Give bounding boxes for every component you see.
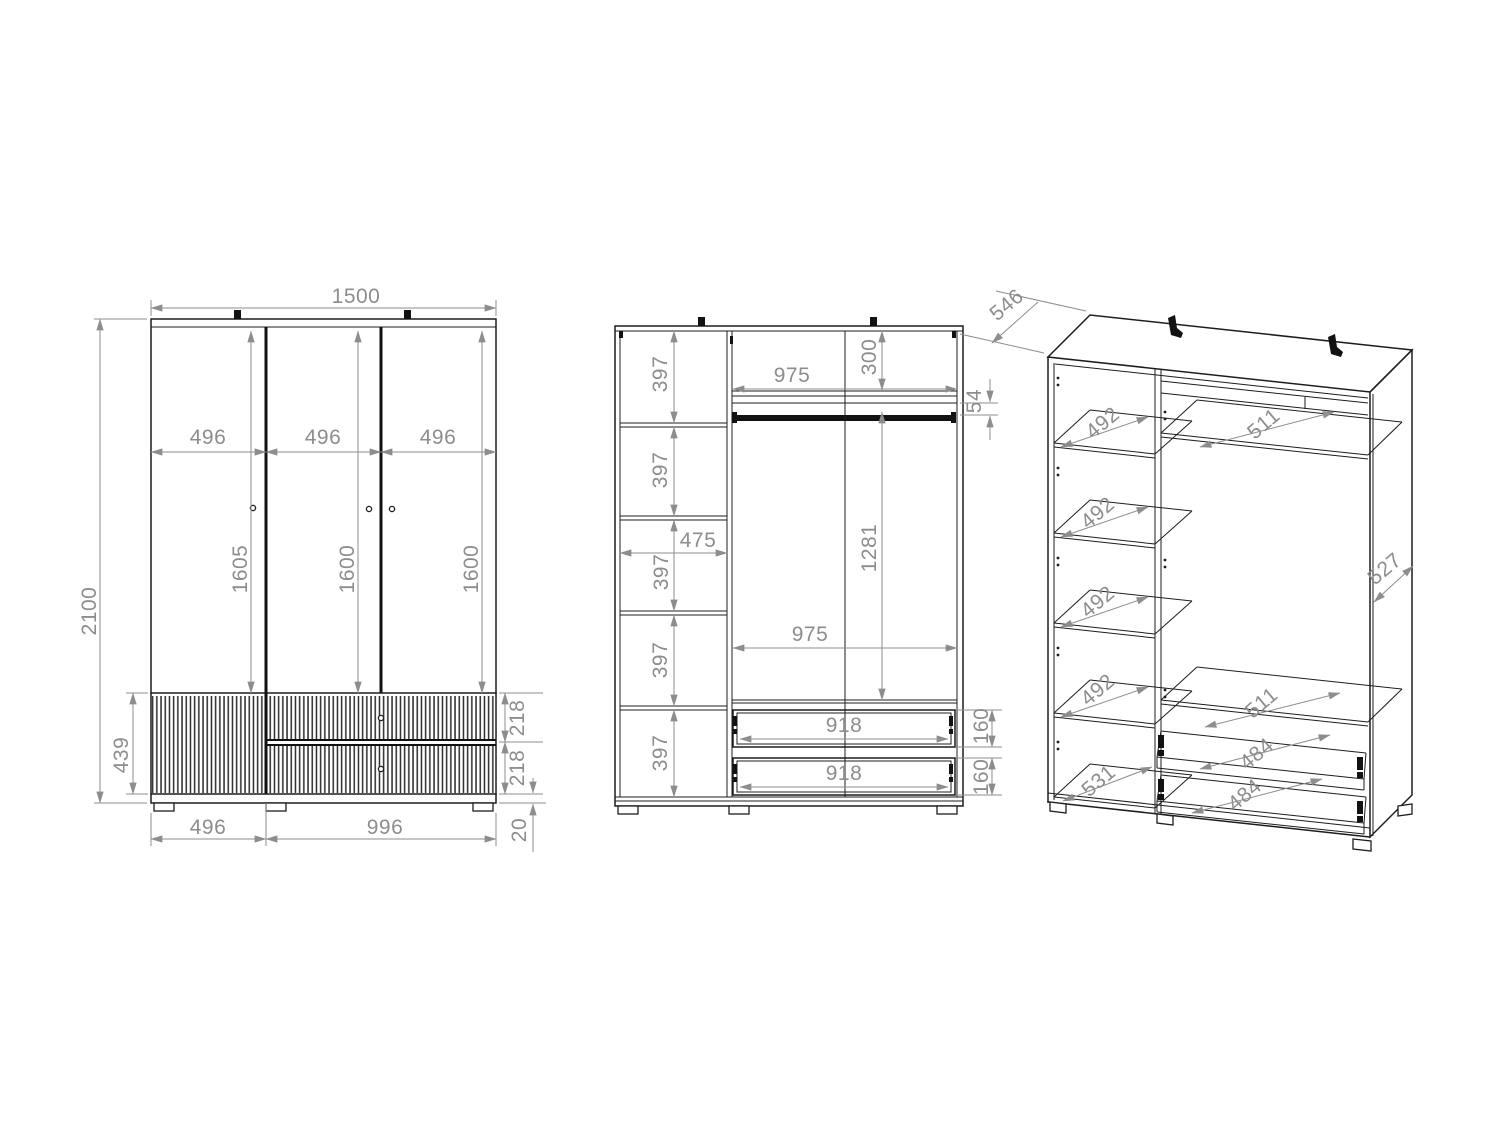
- foot: [1353, 839, 1371, 851]
- drawer-runner: [1357, 757, 1363, 770]
- fluted-door-panel: [152, 696, 265, 793]
- dim-shelf-depth-3: 492: [1076, 581, 1119, 622]
- dim-drawer-front-2: 218: [506, 750, 529, 787]
- corner-fitting: [952, 331, 956, 338]
- foot: [1398, 804, 1412, 816]
- dim-base-width-left: 496: [190, 816, 227, 839]
- foot: [1050, 802, 1066, 813]
- wall-bracket: [234, 310, 241, 319]
- dim-shelf-spacing-1: 397: [649, 356, 672, 393]
- foot: [266, 803, 286, 811]
- wall-bracket: [698, 317, 705, 326]
- wall-bracket: [870, 317, 877, 326]
- corner-fitting: [730, 336, 733, 344]
- foot: [729, 806, 749, 814]
- dim-drawer-depth-2: 484: [1223, 774, 1266, 815]
- shelf-pin-holes: [1057, 377, 1167, 751]
- drawer-runner: [1357, 801, 1363, 814]
- wall-bracket: [1168, 315, 1183, 338]
- wall-bracket: [1328, 334, 1343, 357]
- wall-bracket: [404, 310, 411, 319]
- dim-shelf-spacing-2: 397: [649, 452, 672, 489]
- hanging-rail: [736, 415, 951, 421]
- drawer-runner: [1158, 750, 1164, 756]
- dim-door-height-2: 1600: [336, 545, 359, 594]
- drawer-handle-hole: [378, 766, 383, 771]
- foot: [154, 803, 174, 811]
- dim-overall-depth: 546: [985, 284, 1028, 325]
- dim-rail-clearance: 54: [963, 389, 986, 413]
- foot: [1157, 814, 1173, 825]
- iso-shelves: [1054, 410, 1192, 808]
- dim-shelf-depth-2: 492: [1076, 492, 1119, 533]
- dim-front-overall-width: 1500: [332, 285, 381, 308]
- drawer-runner: [1357, 816, 1363, 822]
- door-handle-hole: [389, 506, 394, 511]
- front-view: [151, 310, 496, 811]
- drawer-runner: [1357, 772, 1363, 778]
- dim-drawer-width-1: 918: [826, 714, 863, 737]
- dim-shelf-spacing-4: 397: [649, 642, 672, 679]
- foot: [473, 803, 493, 811]
- door-handle-hole: [366, 506, 371, 511]
- dim-hanging-height: 1281: [858, 524, 881, 573]
- dim-shelf-spacing-5: 397: [649, 735, 672, 772]
- rail-end-bracket: [951, 412, 956, 423]
- technical-drawing-page: 1500 2100 496 496 496 1605 1600 1600 439…: [0, 0, 1502, 1126]
- drawer-runner: [1158, 779, 1164, 792]
- dim-plinth-height: 20: [508, 818, 531, 842]
- drawer-runner: [1158, 735, 1164, 748]
- section-view-dimensions: 397 397 397 397 397 475 975 300 54 1281 …: [620, 331, 1002, 797]
- dim-base-width-right: 996: [367, 816, 404, 839]
- dim-door-height-3: 1600: [460, 545, 483, 594]
- dim-upper-shelf-depth-1: 511: [1243, 404, 1285, 444]
- corner-fitting: [619, 331, 623, 338]
- dim-upper-shelf-depth-2: 511: [1241, 683, 1283, 723]
- dim-door-width-1: 496: [190, 426, 227, 449]
- foot: [937, 806, 957, 814]
- drawer-handle-hole: [378, 715, 383, 720]
- technical-drawing-canvas: 1500 2100 496 496 496 1605 1600 1600 439…: [0, 0, 1502, 1126]
- dim-door-width-2: 496: [305, 426, 342, 449]
- dim-front-overall-height: 2100: [78, 587, 101, 636]
- dim-top-compartment-height: 300: [858, 339, 881, 376]
- dim-door-height-1: 1605: [229, 545, 252, 594]
- dim-shelf-spacing-3: 397: [650, 554, 673, 591]
- dim-drawer-front-1: 218: [506, 700, 529, 737]
- dim-shelf-depth-4: 492: [1076, 669, 1119, 710]
- dim-base-height: 439: [110, 737, 133, 774]
- dim-drawer-height-1: 160: [970, 708, 993, 745]
- drawer-runner: [1158, 794, 1164, 800]
- dim-door-width-3: 496: [420, 426, 457, 449]
- dim-inner-width-upper: 975: [774, 364, 811, 387]
- foot: [618, 806, 638, 814]
- dim-column-width: 475: [680, 529, 717, 552]
- perspective-view-dimensions: 546 527 492 492 492 492 531 511 511 484 …: [960, 284, 1413, 815]
- dim-drawer-width-2: 918: [826, 762, 863, 785]
- rail-end-bracket: [732, 412, 737, 423]
- dim-drawer-height-2: 160: [970, 759, 993, 796]
- dim-inner-width-lower: 975: [792, 623, 829, 646]
